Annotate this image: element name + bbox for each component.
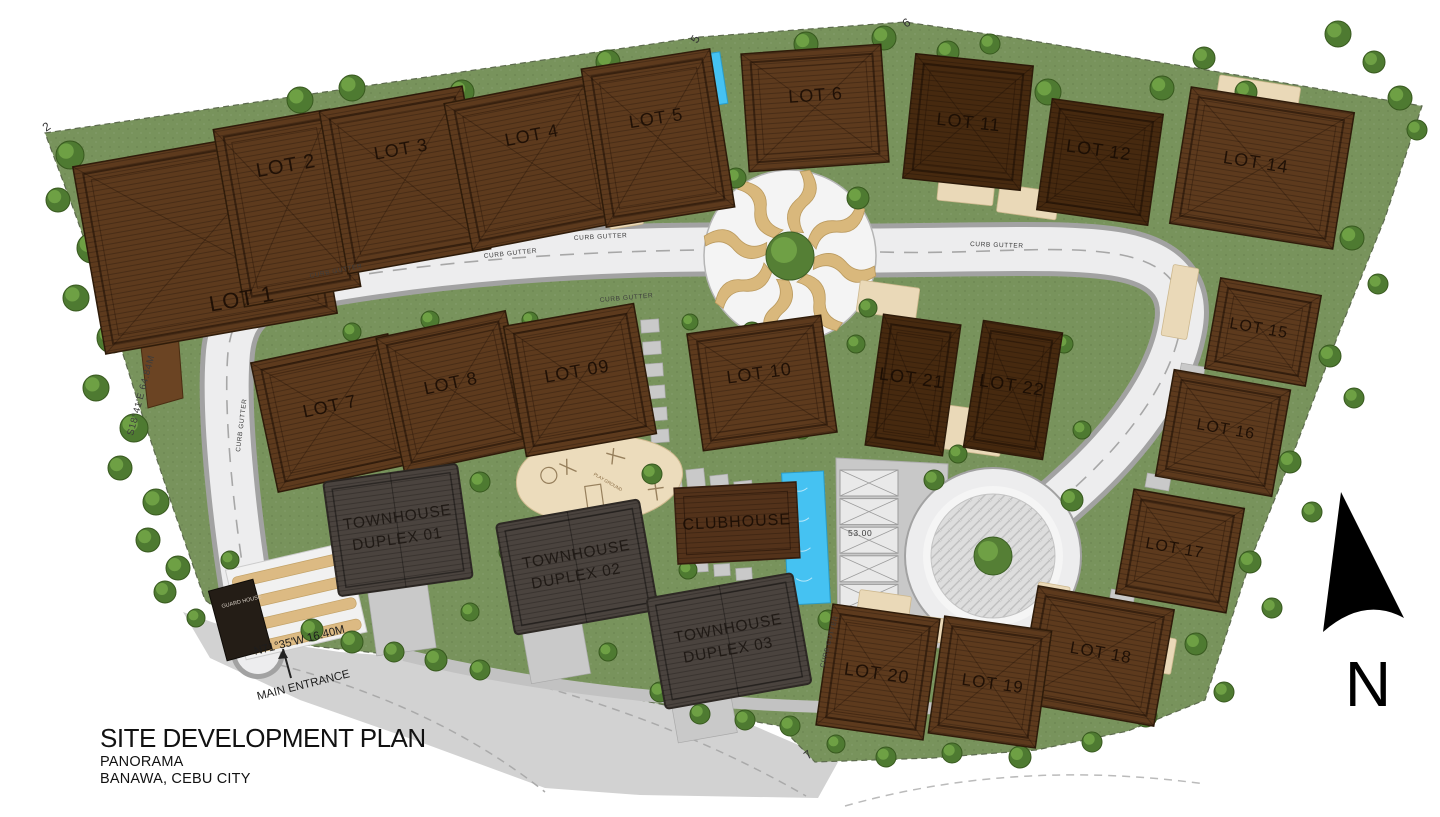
tree — [1193, 47, 1215, 69]
tree — [780, 716, 800, 736]
tree — [154, 581, 176, 603]
tree — [343, 323, 361, 341]
tree — [1262, 598, 1282, 618]
site-plan-svg: 53.00 CISTERN TANK GUARD HOUSE — [0, 0, 1440, 817]
tree — [56, 141, 84, 169]
tree — [166, 556, 190, 580]
tree — [1363, 51, 1385, 73]
parking-stall — [840, 499, 898, 525]
tree — [1082, 732, 1102, 752]
tree — [187, 609, 205, 627]
tree — [847, 187, 869, 209]
tree — [1214, 682, 1234, 702]
tree — [735, 710, 755, 730]
tree — [384, 642, 404, 662]
north-label: N — [1345, 648, 1391, 720]
tree — [1185, 633, 1207, 655]
tree — [1009, 746, 1031, 768]
tree — [1239, 551, 1261, 573]
tree — [876, 747, 896, 767]
tree — [827, 735, 845, 753]
tree — [690, 704, 710, 724]
tree — [287, 87, 313, 113]
tree — [642, 464, 662, 484]
parking-stall — [840, 556, 898, 582]
tree — [1302, 502, 1322, 522]
parking-dimension: 53.00 — [848, 528, 872, 538]
tree — [1388, 86, 1412, 110]
tree — [1150, 76, 1174, 100]
tree — [63, 285, 89, 311]
walk-pad — [645, 363, 664, 377]
plan-subtitle-project: PANORAMA — [100, 754, 184, 770]
tree — [1344, 388, 1364, 408]
tree — [682, 314, 698, 330]
tree — [1279, 451, 1301, 473]
walk-pad — [643, 341, 662, 355]
lot-roof — [741, 44, 889, 171]
plan-subtitle-location: BANAWA, CEBU CITY — [100, 771, 251, 787]
tree — [470, 660, 490, 680]
tree — [1407, 120, 1427, 140]
walk-pad — [736, 567, 753, 580]
tree — [859, 299, 877, 317]
tree — [1061, 489, 1083, 511]
tree — [339, 75, 365, 101]
tree — [1073, 421, 1091, 439]
tree — [847, 335, 865, 353]
tree — [143, 489, 169, 515]
walk-pad — [368, 584, 436, 656]
tree — [83, 375, 109, 401]
lot-roof — [687, 315, 837, 451]
tree — [924, 470, 944, 490]
tree — [461, 603, 479, 621]
tree — [425, 649, 447, 671]
tree — [221, 551, 239, 569]
plan-title: SITE DEVELOPMENT PLAN — [100, 723, 426, 753]
tree — [1340, 226, 1364, 250]
lot-label: LOT 6 — [788, 83, 844, 107]
tree — [942, 743, 962, 763]
tree — [1325, 21, 1351, 47]
walk-pad — [641, 319, 660, 333]
parking-stall — [840, 470, 898, 496]
tree — [599, 643, 617, 661]
tree — [470, 472, 490, 492]
lot-roof — [1037, 99, 1163, 225]
tree — [1368, 274, 1388, 294]
walk-pad — [714, 563, 731, 576]
tree — [136, 528, 160, 552]
tree — [1319, 345, 1341, 367]
tree — [980, 34, 1000, 54]
tree — [46, 188, 70, 212]
site-development-plan: 53.00 CISTERN TANK GUARD HOUSE — [0, 0, 1440, 817]
tree — [108, 456, 132, 480]
lot-roof — [581, 49, 734, 227]
